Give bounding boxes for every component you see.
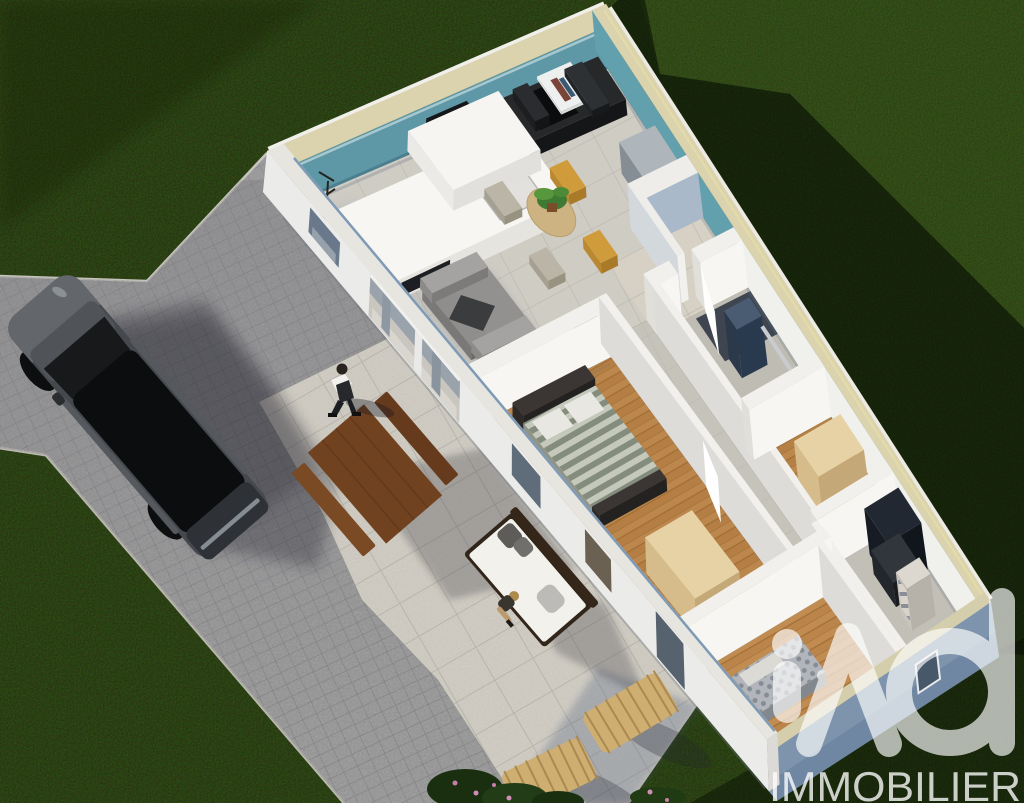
svg-text:IMMOBILIER: IMMOBILIER [769, 763, 1021, 803]
